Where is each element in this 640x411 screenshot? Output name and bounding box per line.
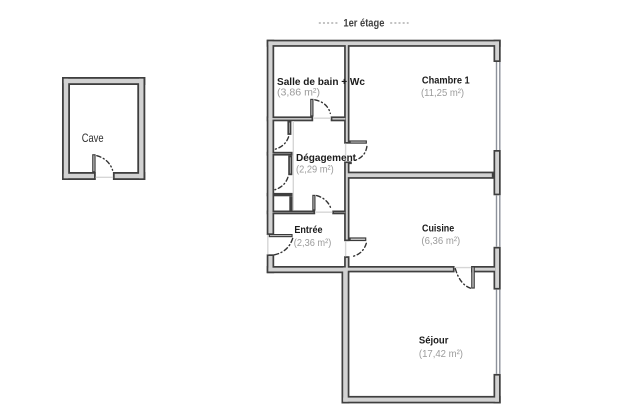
svg-text:1er étage: 1er étage — [343, 18, 384, 30]
svg-text:Cuisine: Cuisine — [422, 224, 454, 235]
svg-text:Salle de bain + Wc: Salle de bain + Wc — [277, 77, 365, 88]
svg-text:Entrée: Entrée — [294, 225, 322, 236]
svg-text:(3,86 m²): (3,86 m²) — [277, 87, 320, 98]
svg-text:Séjour: Séjour — [419, 336, 449, 347]
svg-text:Cave: Cave — [82, 131, 104, 145]
svg-text:(2,29 m²): (2,29 m²) — [296, 165, 334, 176]
svg-text:Dégagement: Dégagement — [296, 153, 357, 164]
svg-text:(2,36 m²): (2,36 m²) — [294, 238, 332, 249]
svg-text:(11,25 m²): (11,25 m²) — [421, 88, 464, 99]
svg-text:(17,42 m²): (17,42 m²) — [419, 349, 463, 360]
svg-text:(6,36 m²): (6,36 m²) — [421, 236, 460, 247]
svg-text:Chambre 1: Chambre 1 — [422, 75, 470, 86]
